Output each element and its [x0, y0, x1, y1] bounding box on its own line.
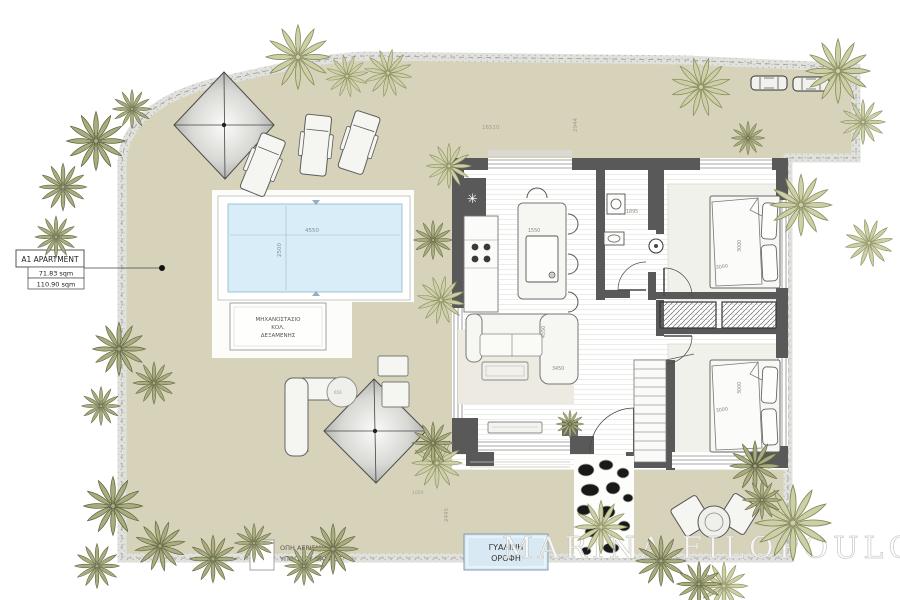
dim-garden-bottom: 1050 [412, 490, 424, 496]
dim-bed2-depth: 3000 [737, 382, 743, 394]
wall-wc-bottom [598, 290, 630, 298]
wc-sink-icon [604, 232, 624, 245]
dim-bed1-depth: 3000 [737, 240, 743, 252]
closet-1 [660, 302, 716, 328]
closet-2 [722, 302, 776, 328]
outdoor-round-table [327, 377, 357, 407]
dim-living-width: 3450 [552, 366, 564, 372]
dim-round-table: 650 [334, 390, 342, 395]
palm-tree-icon [67, 112, 126, 171]
bed-double [710, 196, 780, 288]
window-kitchen-top [488, 150, 572, 170]
dim-site-top: 16510 [482, 125, 500, 131]
bedroom1: 3000 3000 [710, 196, 780, 288]
coffee-table [482, 362, 528, 380]
pillow [761, 245, 778, 282]
apartment-area-net: 71.83 sqm [39, 270, 74, 278]
kitchen-counter [464, 216, 498, 312]
pump-room-label-2: ΚΟΛ. [271, 325, 285, 331]
dim-pool-width: 2500 [277, 243, 283, 257]
wall-closet-bed2 [656, 328, 788, 334]
floor-plan-page: 16510 2944 2445 1050 4550 2500 ΜΗΧΑΝΟΣΤΑ… [0, 0, 900, 600]
pillow [761, 367, 778, 404]
window-bedroom1-top [700, 158, 772, 170]
pump-room-label-3: ΔΕΞΑΜΕΝΗΣ [261, 333, 296, 339]
wall-wc-right-1 [648, 168, 656, 230]
window-living-bottom-sliding [478, 440, 570, 452]
wall-hall-bed1 [656, 158, 664, 234]
wall-wc-right-2 [648, 272, 656, 300]
kitchen-island: 1550 [518, 203, 566, 299]
pool [228, 204, 402, 292]
apartment-name: A1 APARTMENT [21, 255, 79, 264]
dim-island: 1550 [528, 228, 540, 234]
leader-dot [159, 265, 165, 271]
pump-room: ΜΗΧΑΝΟΣΤΑΣΙΟ ΚΟΛ. ΔΕΞΑΜΕΝΗΣ [230, 303, 326, 350]
pillow [761, 203, 778, 240]
dim-living-depth: 4550 [541, 326, 547, 338]
outdoor-side-table [378, 356, 408, 376]
car-icon [751, 76, 787, 90]
apartment-area-total: 110.90 sqm [37, 281, 76, 289]
outdoor-stool [382, 382, 409, 407]
pump-room-label-1: ΜΗΧΑΝΟΣΤΑΣΙΟ [256, 317, 302, 323]
dim-pool-length: 4550 [305, 228, 319, 234]
palm-tree-icon [75, 544, 120, 589]
washing-machine-icon [607, 194, 625, 214]
sink-faucet [549, 272, 555, 278]
dim-garden-left: 2445 [444, 508, 450, 522]
bed-double [710, 360, 780, 452]
palm-tree-icon [30, 154, 95, 219]
dim-bathroom: 1895 [626, 209, 638, 215]
floor-plan-drawing: 16510 2944 2445 1050 4550 2500 ΜΗΧΑΝΟΣΤΑ… [0, 0, 900, 600]
tv-bench [488, 422, 542, 433]
watermark-text: MARINA FILOPOULOU [502, 531, 900, 566]
utility-star-icon: ✳ [467, 192, 478, 207]
bedroom2: 3000 3000 [710, 360, 780, 452]
palm-tree-icon [81, 386, 120, 425]
dim-site-right: 2944 [573, 118, 579, 132]
pillow [761, 409, 778, 446]
wall-bed1-closet [656, 292, 788, 299]
palm-tree-icon [838, 212, 899, 273]
